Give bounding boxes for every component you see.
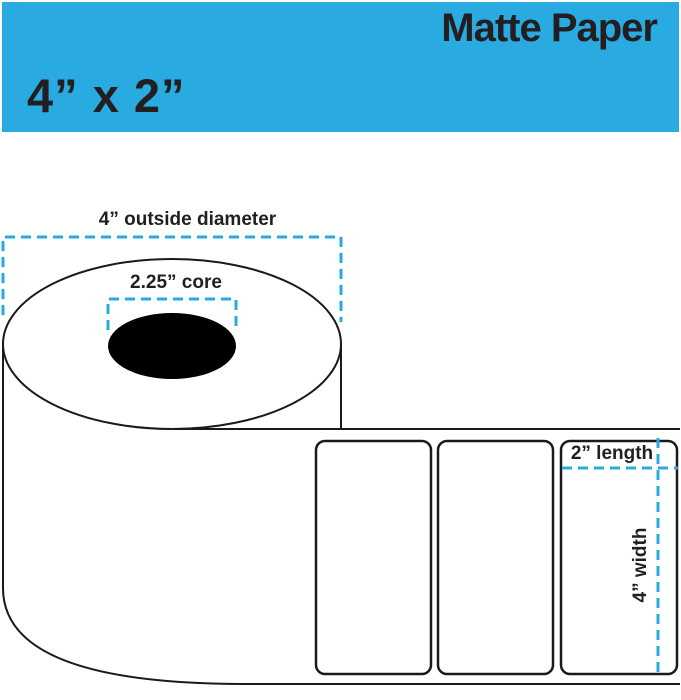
label-rect bbox=[561, 441, 677, 674]
label-roll-diagram bbox=[0, 0, 681, 700]
label-rect bbox=[316, 441, 431, 674]
roll-core-hole bbox=[108, 313, 236, 379]
core-size-label: 2.25” core bbox=[76, 272, 276, 294]
label-rect bbox=[438, 441, 553, 674]
outside-diameter-label: 4” outside diameter bbox=[30, 209, 345, 231]
label-length-label: 2” length bbox=[562, 443, 662, 465]
label-width-label: 4” width bbox=[630, 515, 652, 615]
product-image: Matte Paper 4” x 2” 4” outside diameter … bbox=[0, 0, 681, 700]
